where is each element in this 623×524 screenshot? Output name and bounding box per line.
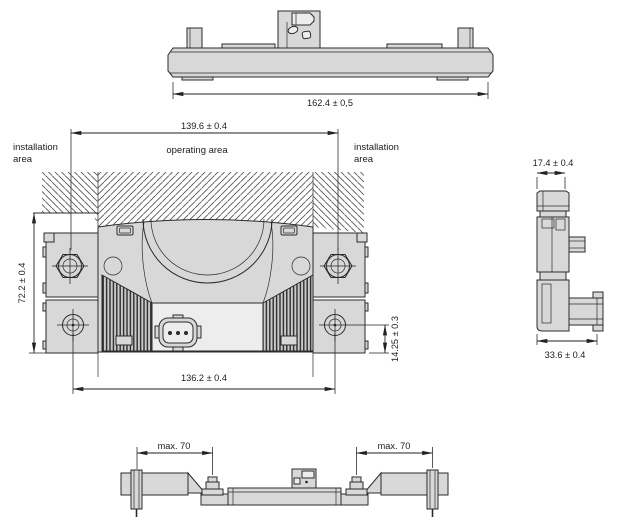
bottom-connector-block <box>292 469 316 488</box>
dim-mount-width-lower: 136.2 ± 0.4 <box>181 373 227 383</box>
technical-drawing-page: 162.4 ± 0,5 <box>0 0 623 524</box>
label-installation-area-right: installation area <box>354 142 402 165</box>
top-rail-left <box>222 44 275 48</box>
top-view: 162.4 ± 0,5 <box>168 11 493 108</box>
clamp-screw-left <box>131 470 142 517</box>
top-view-connector-block <box>278 11 320 48</box>
bottom-housing-bar <box>228 488 341 505</box>
hatch-installation-left <box>42 172 98 227</box>
dim-overall-height: 72.2 ± 0.4 <box>17 263 27 304</box>
dim-clearance-right: max. 70 <box>378 441 411 451</box>
side-connector <box>569 298 603 325</box>
top-rail-right <box>387 44 442 48</box>
pin-2 <box>176 331 180 335</box>
dim-mount-width-upper: 139.6 ± 0.4 <box>181 121 227 131</box>
hatch-installation-right <box>313 172 364 233</box>
mounting-bracket-right <box>313 233 368 353</box>
hatch-operating-area <box>98 172 313 227</box>
dim-side-top-width: 17.4 ± 0.4 <box>533 158 574 168</box>
hex-bolt-left <box>202 477 223 495</box>
dim-side-overall-depth: 33.6 ± 0.4 <box>545 350 586 360</box>
top-view-left-tab <box>187 28 202 50</box>
side-view: 17.4 ± 0.4 33.6 ± 0.4 <box>533 158 603 360</box>
technical-drawing: 162.4 ± 0,5 <box>0 0 623 524</box>
pin-3 <box>184 331 188 335</box>
pin-1 <box>168 331 172 335</box>
label-installation-area-left: installation area <box>13 142 61 165</box>
label-operating-area: operating area <box>166 145 228 156</box>
bottom-view: max. 70 max. 70 <box>121 441 448 517</box>
hex-bolt-right <box>346 477 367 495</box>
front-view: 139.6 ± 0.4 72.2 ± 0.4 14.25 ± 0.3 136.2… <box>13 121 402 394</box>
clamp-screw-right <box>427 470 438 517</box>
top-view-right-tab <box>458 28 473 50</box>
dim-clearance-left: max. 70 <box>158 441 191 451</box>
dim-overall-width: 162.4 ± 0,5 <box>307 98 353 108</box>
dim-hole-to-bottom: 14.25 ± 0.3 <box>390 316 400 362</box>
side-tab <box>569 237 585 252</box>
